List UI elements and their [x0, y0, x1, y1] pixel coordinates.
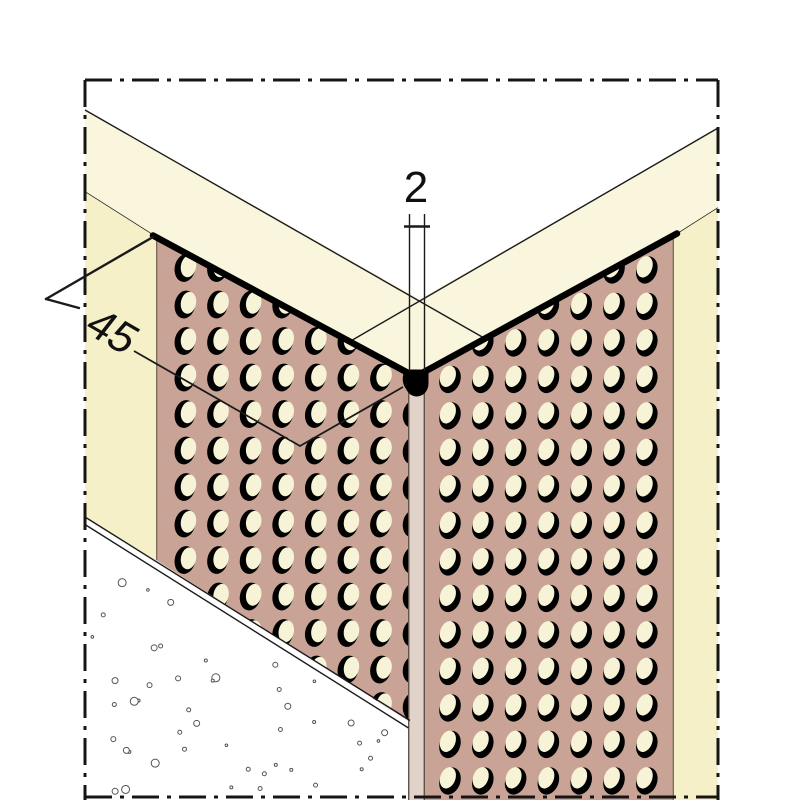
perforation-hole [270, 654, 296, 685]
perforation-hole [172, 617, 198, 648]
corner-nose [405, 370, 429, 800]
corner-profile-diagram: 2 45 [0, 0, 800, 800]
perforation-hole [400, 252, 426, 283]
perforation-hole [172, 690, 198, 721]
perforation-hole [205, 690, 231, 721]
perforation-hole [205, 617, 231, 648]
corner-profile-drawing [0, 0, 800, 800]
perforation-hole [270, 690, 296, 721]
perforation-hole [237, 690, 263, 721]
dimension-label-nose-width: 2 [392, 166, 440, 210]
perforation-hole [303, 690, 329, 721]
perforation-hole [237, 654, 263, 685]
